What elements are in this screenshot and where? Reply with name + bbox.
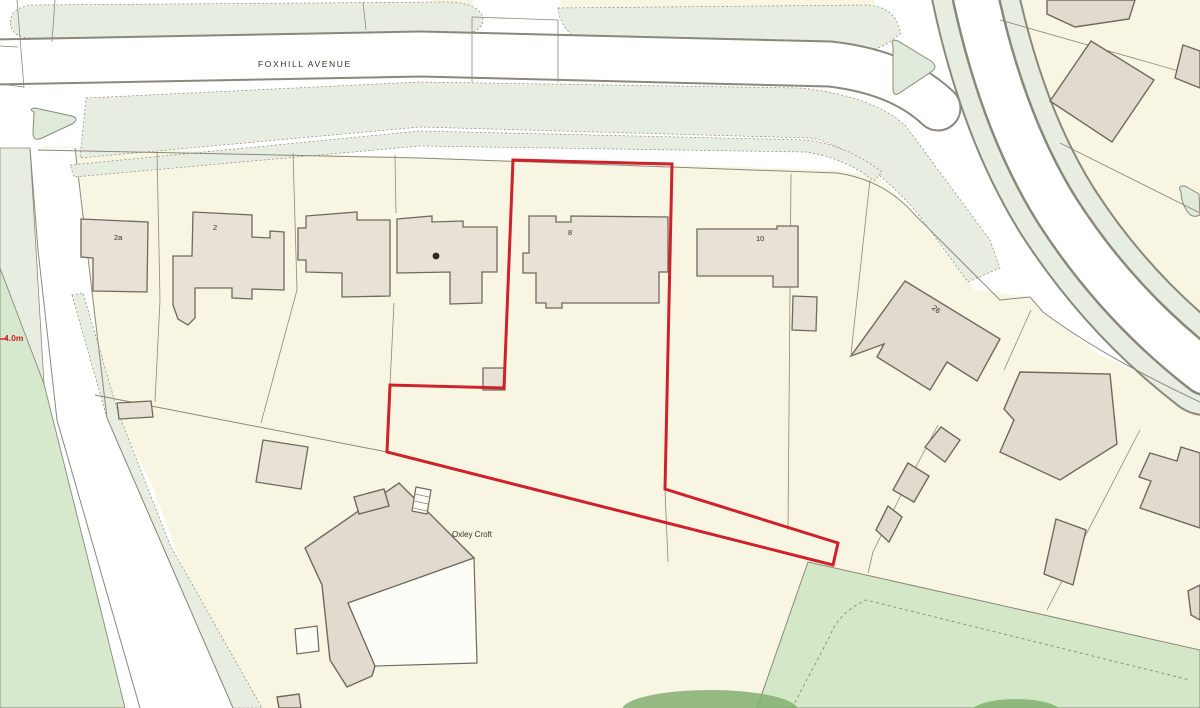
dimension-label: 4.0m [4, 333, 24, 343]
oxley-croft-west-tab [295, 626, 319, 654]
shed-left [117, 401, 153, 419]
site-plan-page: FOXHILL AVENUE Oxley Croft 4.0m 2a 2 8 1… [0, 0, 1200, 708]
top-gap-north [472, 17, 558, 20]
street-label: FOXHILL AVENUE [258, 59, 352, 69]
house-number-8: 8 [568, 228, 572, 237]
outbuilding-10 [792, 296, 817, 331]
house-number-2a: 2a [114, 233, 123, 242]
garage-oxley [256, 440, 308, 489]
island-left [31, 108, 76, 139]
shed-bottom-edge [277, 694, 301, 708]
house-number-10: 10 [756, 234, 764, 243]
survey-point-dot [433, 253, 440, 260]
site-plan-map: FOXHILL AVENUE Oxley Croft 4.0m 2a 2 8 1… [0, 0, 1200, 708]
house-number-2: 2 [213, 223, 217, 232]
property-label: Oxley Croft [452, 530, 493, 539]
building-8 [523, 216, 668, 308]
oxley-croft-hatched-tab [412, 487, 431, 514]
